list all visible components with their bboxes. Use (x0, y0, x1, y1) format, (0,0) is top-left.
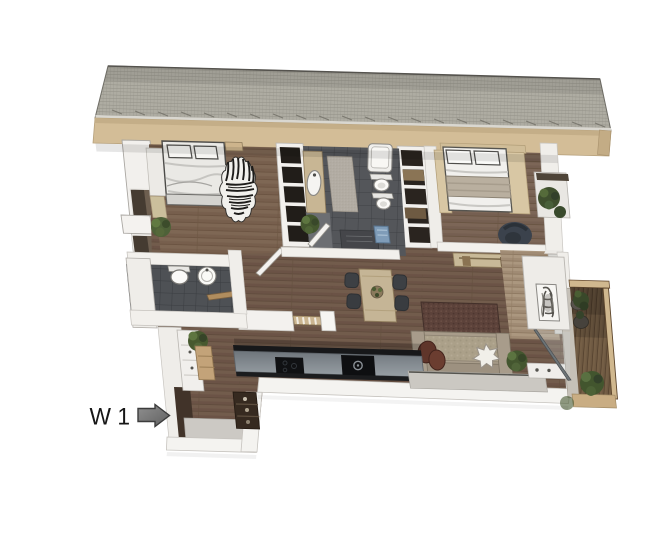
svg-text:W 1: W 1 (90, 404, 131, 431)
